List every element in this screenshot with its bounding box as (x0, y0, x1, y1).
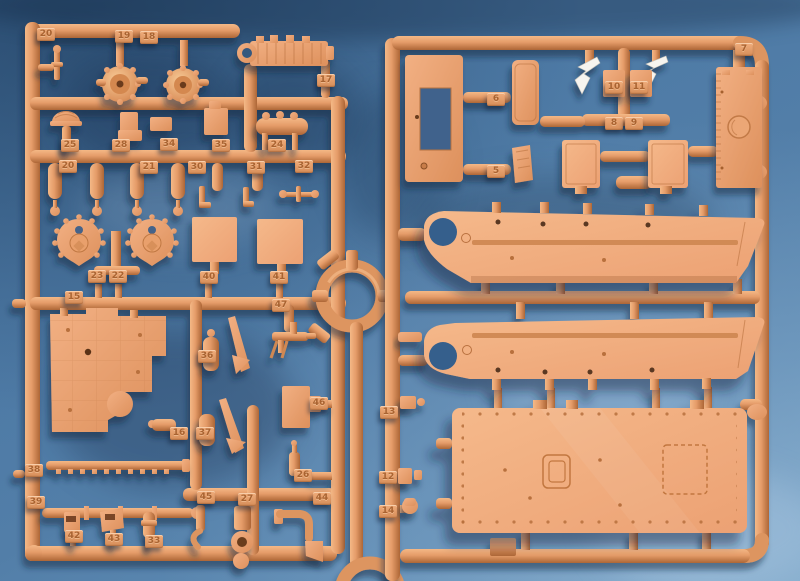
periscope-part (38, 45, 63, 80)
box-part (150, 117, 172, 131)
left-sprue-frame (12, 22, 348, 561)
door-hatch-part (512, 60, 539, 125)
box-part (118, 130, 142, 141)
toothed-rod-part (46, 459, 190, 474)
engine-block-part (237, 35, 334, 66)
ammo-shell-parts (48, 163, 319, 216)
dome-vent-part (50, 111, 82, 152)
box-part (209, 101, 221, 109)
block-part (603, 70, 625, 97)
idler-mount-part (125, 214, 179, 266)
manifold-part (256, 111, 308, 150)
hatch-panel-part (562, 140, 600, 194)
sprue-photo: 2019181725283435242021303132232240411547… (0, 0, 800, 581)
idler-mount-part (52, 214, 106, 266)
hatch-panel-part (192, 217, 237, 262)
machine-gun-part (271, 322, 316, 358)
hull-side-part-upper (424, 202, 764, 283)
runner-stub (94, 266, 140, 275)
white-arrow-part (575, 57, 600, 94)
hull-roof-plate-part (436, 400, 747, 533)
bracket-part (512, 145, 533, 183)
vent-panel-part (716, 67, 762, 188)
sprue-shapes (0, 0, 800, 581)
box-part (204, 108, 228, 135)
block-part (630, 70, 652, 97)
hatch-panel-part (257, 219, 303, 264)
box-part (282, 386, 310, 428)
hull-side-part-lower (424, 317, 764, 390)
superstructure-panel-part (405, 55, 463, 182)
bottle-part (289, 440, 332, 480)
hatch-panel-part (648, 140, 688, 194)
engine-deck-part (50, 308, 166, 432)
